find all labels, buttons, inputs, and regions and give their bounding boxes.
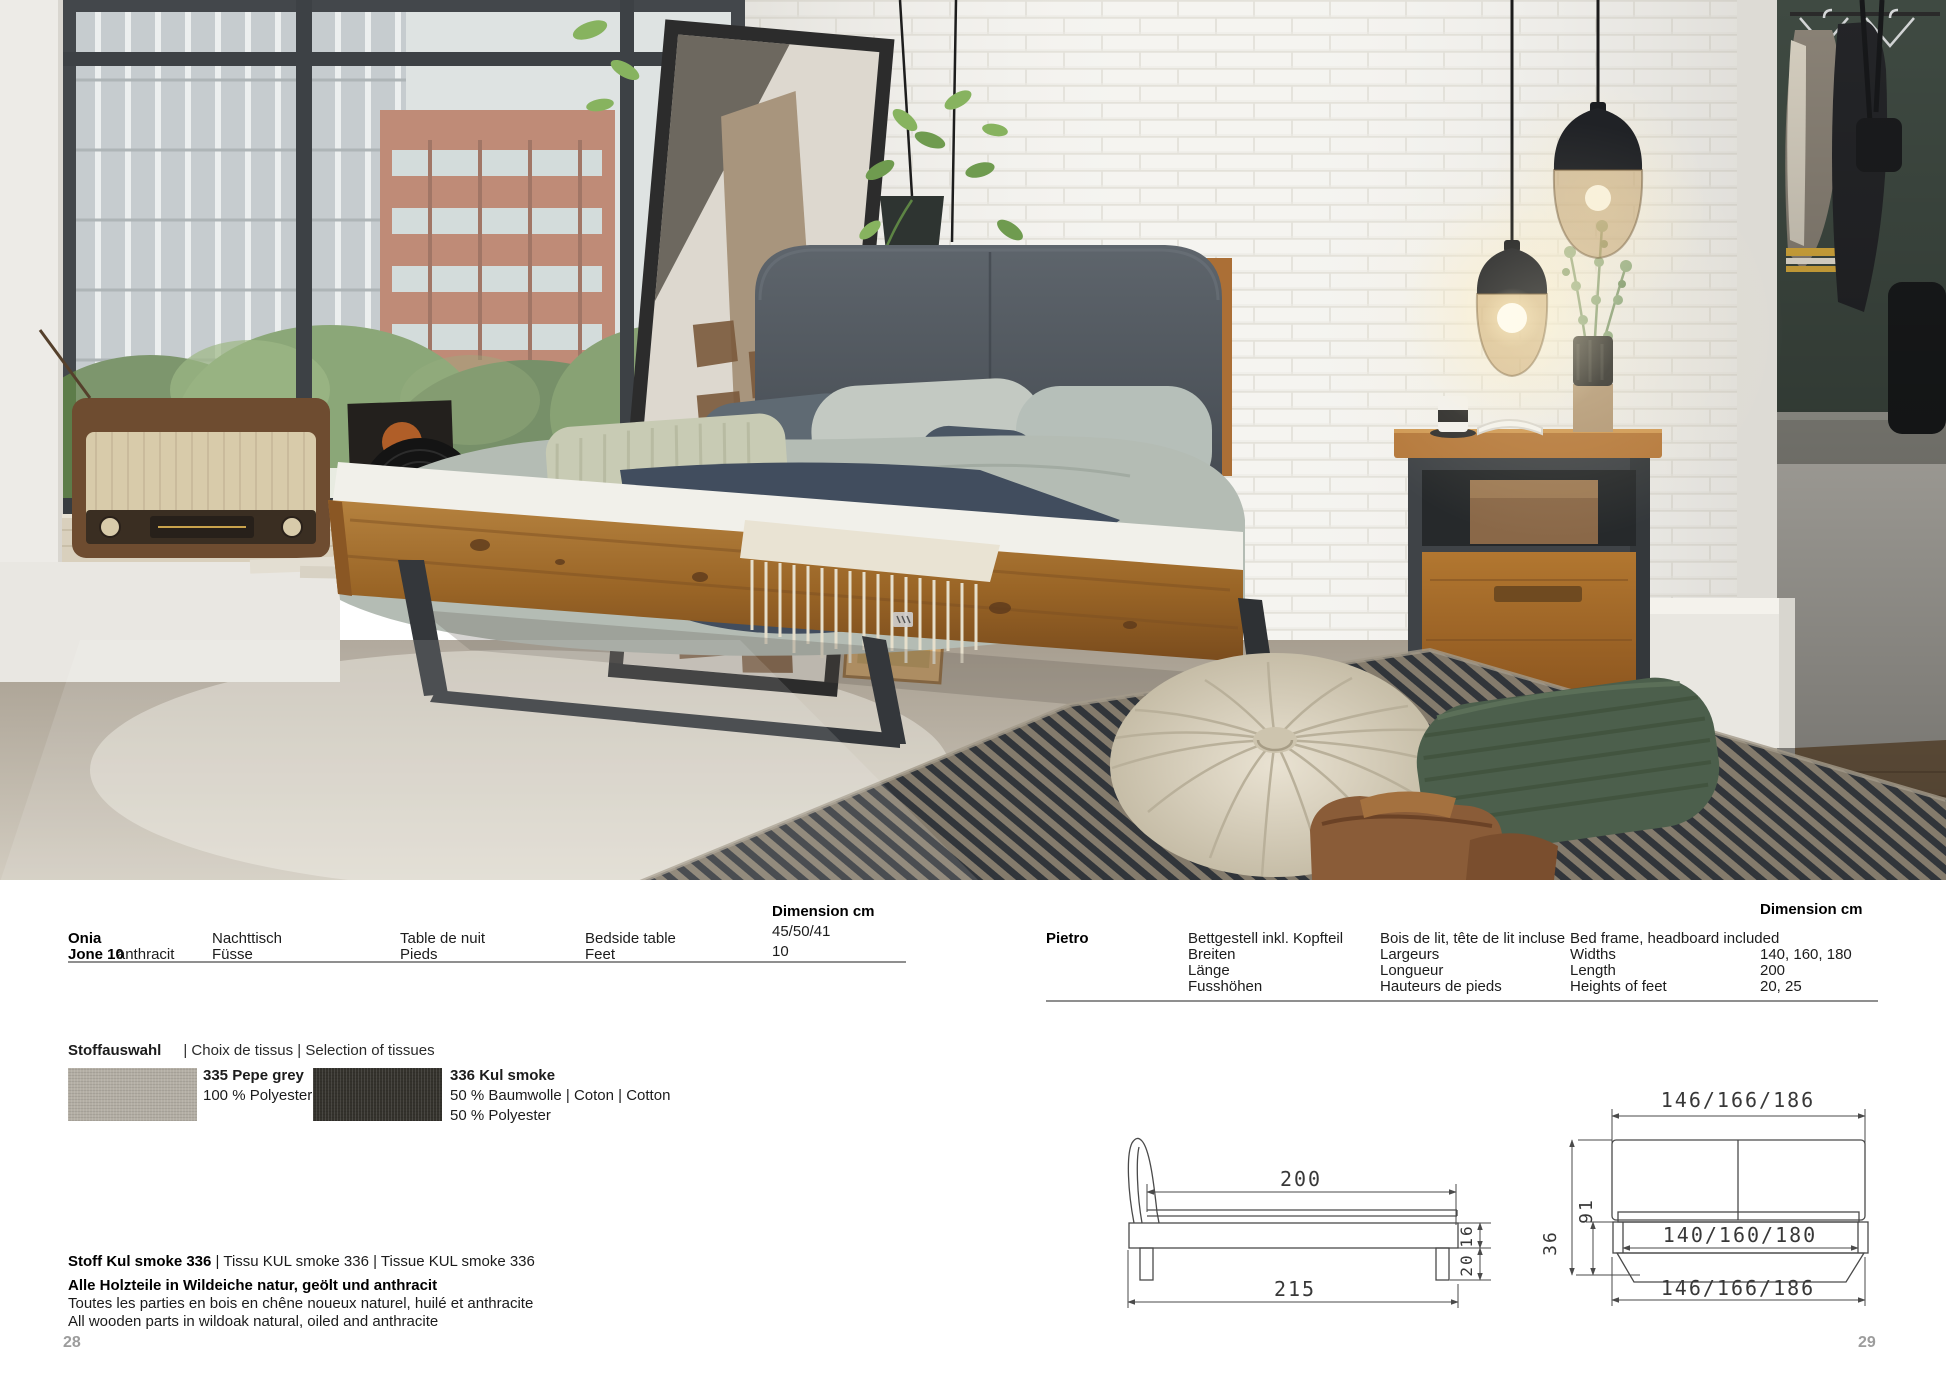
- dim-width-bottom: 146/166/186: [1661, 1276, 1815, 1300]
- dim-foot-height: 20: [1457, 1253, 1476, 1276]
- fabric-swatch-label: 335 Pepe grey 100 % Polyester: [203, 1066, 312, 1106]
- label-column-en: Bedside table Feet: [585, 931, 676, 963]
- product-photo: [0, 0, 1946, 880]
- dim-length-outer: 215: [1274, 1277, 1316, 1301]
- materials-note: Stoff Kul smoke 336 | Tissu KUL smoke 33…: [68, 1253, 535, 1331]
- table-rule: [68, 961, 906, 963]
- label-column-de: Bettgestell inkl. Kopfteil Breiten Länge…: [1188, 931, 1343, 995]
- fabric-swatch-kul-smoke: [313, 1068, 442, 1121]
- fabric-swatch-pepe-grey: [68, 1068, 197, 1121]
- dim-length-inner: 200: [1280, 1167, 1322, 1191]
- fabric-selection-title: Stoffauswahl| Choix de tissus | Selectio…: [68, 1042, 435, 1059]
- hall-corridor: [1777, 0, 1946, 880]
- bed-side-outline: [1128, 1138, 1458, 1280]
- product-name: Onia: [68, 931, 174, 947]
- label-column-de: Nachttisch Füsse: [212, 931, 282, 963]
- page-number-left: 28: [63, 1334, 81, 1352]
- dimension-column: 140, 160, 180 200 20, 25: [1760, 931, 1852, 995]
- label-column-fr: Table de nuit Pieds: [400, 931, 485, 963]
- fabric-selection: Stoffauswahl| Choix de tissus | Selectio…: [68, 1042, 435, 1059]
- fabric-swatch-label: 336 Kul smoke 50 % Baumwolle | Coton | C…: [450, 1066, 670, 1126]
- bed-front-outline: [1612, 1140, 1868, 1282]
- dimension-header: Dimension cm: [1760, 902, 1863, 918]
- wood-note-fr: Toutes les parties en bois en chêne noue…: [68, 1295, 535, 1313]
- product-name: Pietro: [1046, 931, 1089, 947]
- brand-emblem: [893, 612, 913, 627]
- dim-width-inner: 140/160/180: [1663, 1223, 1817, 1247]
- product-column: Onia Jone 10anthracit: [68, 931, 174, 963]
- wood-note-de: Alle Holzteile in Wildeiche natur, geölt…: [68, 1277, 535, 1295]
- technical-drawing-front-view: 146/166/186 140/160/180 146/166/186 36 9…: [1540, 1085, 1900, 1315]
- dimension-column: Dimension cm 45/50/41 10: [772, 902, 875, 962]
- fabric-note: Stoff Kul smoke 336 | Tissu KUL smoke 33…: [68, 1253, 535, 1271]
- page-number-right: 29: [1858, 1334, 1876, 1352]
- dimension-value: 45/50/41: [772, 922, 875, 942]
- dim-headboard-height: 91: [1576, 1198, 1597, 1224]
- catalog-spread: Dimension cm 45/50/41 10 Onia Jone 10ant…: [0, 0, 1946, 1376]
- wood-note-en: All wooden parts in wildoak natural, oil…: [68, 1313, 535, 1331]
- label-column-en: Bed frame, headboard included Widths Len…: [1570, 931, 1779, 995]
- technical-drawing-side-view: 200 215 16 20: [1095, 1100, 1495, 1315]
- table-rule: [1046, 1000, 1878, 1002]
- label-column-fr: Bois de lit, tête de lit incluse Largeur…: [1380, 931, 1565, 995]
- dim-total-height: 36: [1540, 1230, 1561, 1256]
- dimension-value: 10: [772, 942, 875, 962]
- dim-width-top: 146/166/186: [1661, 1088, 1815, 1112]
- dim-frame-height: 16: [1457, 1224, 1476, 1247]
- dimension-header: Dimension cm: [772, 902, 875, 922]
